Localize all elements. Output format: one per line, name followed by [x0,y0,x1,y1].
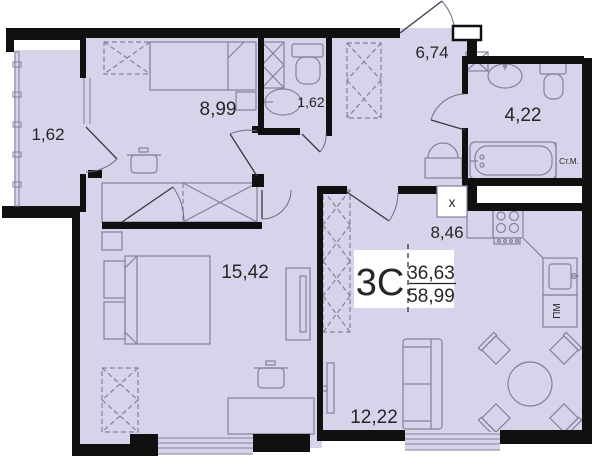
floor-bedroom1 [80,38,262,228]
entry-pillar [453,26,481,40]
room-bathroom-label: 4,22 [505,105,542,126]
room-living-label: 12,22 [350,407,398,428]
vent-duct-label: x [449,194,456,210]
room-wc-label: 1,62 [297,94,324,110]
dishwasher-label: ПМ [552,303,563,319]
room-bedroom1-label: 8,99 [200,99,237,120]
room-loggia-label: 1,62 [31,125,64,144]
living-area-label: 36,63 [407,263,455,284]
room-kitchen-label: 8,46 [430,223,463,242]
total-area-label: 58,99 [407,286,455,307]
apartment-info-box: 3С 36,63 58,99 [354,244,456,314]
living-window [405,432,500,450]
washing-machine-label: Ст.М. [559,157,579,166]
bedroom-window [158,436,253,454]
room-bedroom2-label: 15,42 [221,262,269,283]
apartment-type-label: 3С [356,262,405,304]
floor-plan-svg: x 3С 36,63 58,99 1,62 8,99 1,62 6,74 4,2… [0,0,600,472]
room-hallway-label: 6,74 [415,43,448,62]
vent-duct-box: x [437,186,467,217]
floor-entry [398,28,455,40]
floor-plan: x 3С 36,63 58,99 1,62 8,99 1,62 6,74 4,2… [0,0,600,472]
shaft-gap [477,186,584,203]
